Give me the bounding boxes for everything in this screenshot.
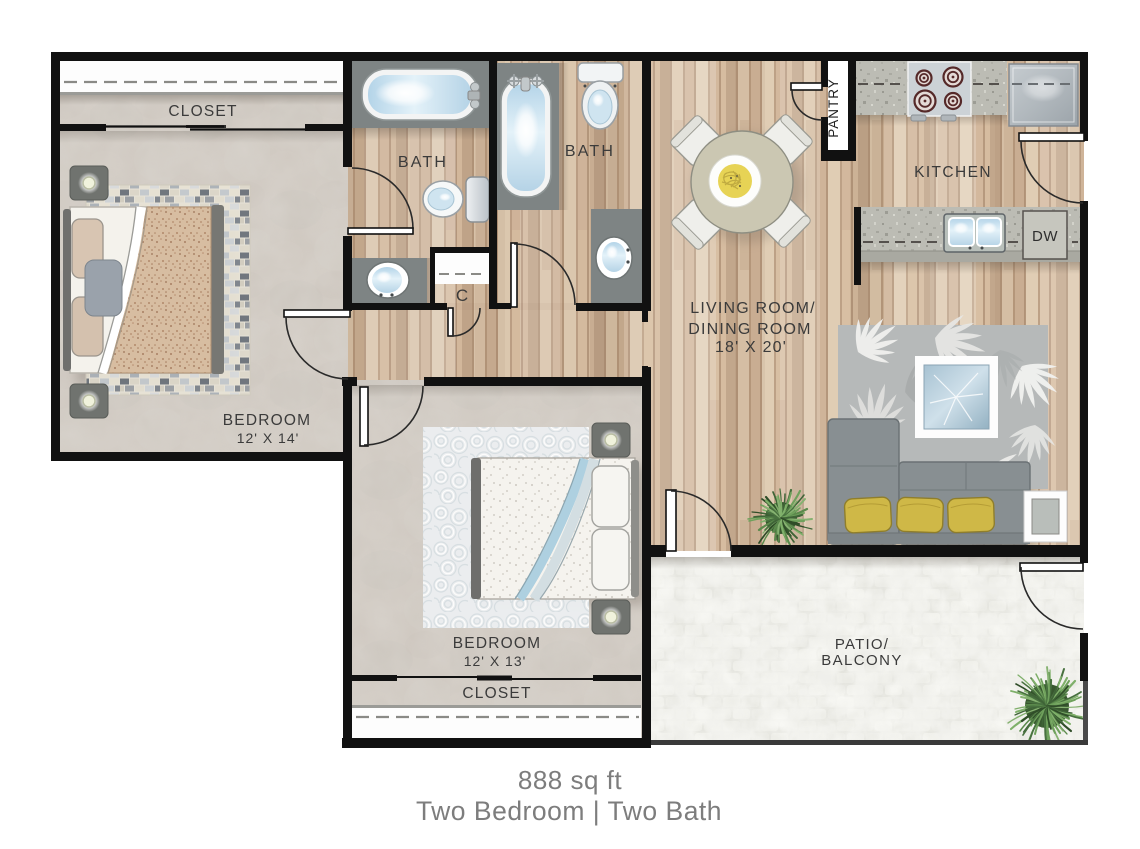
svg-text:888 sq ft: 888 sq ft — [518, 765, 623, 795]
svg-text:BEDROOM: BEDROOM — [453, 635, 542, 652]
svg-text:BATH: BATH — [565, 143, 615, 160]
svg-text:PANTRY: PANTRY — [826, 78, 841, 138]
svg-text:PATIO/: PATIO/ — [835, 636, 889, 653]
svg-text:BATH: BATH — [398, 154, 448, 171]
svg-text:LIVING ROOM/: LIVING ROOM/ — [690, 300, 816, 317]
svg-text:C: C — [456, 286, 468, 305]
svg-text:12' X 14': 12' X 14' — [237, 430, 300, 446]
svg-text:18' X 20': 18' X 20' — [715, 339, 787, 356]
svg-text:Two Bedroom | Two Bath: Two Bedroom | Two Bath — [416, 796, 722, 826]
svg-text:BEDROOM: BEDROOM — [223, 412, 312, 429]
svg-text:CLOSET: CLOSET — [168, 103, 237, 120]
svg-text:DW: DW — [1032, 228, 1058, 245]
svg-text:12' X 13': 12' X 13' — [464, 653, 527, 669]
svg-text:CLOSET: CLOSET — [462, 685, 531, 702]
svg-text:KITCHEN: KITCHEN — [914, 164, 992, 181]
svg-text:BALCONY: BALCONY — [821, 652, 903, 669]
svg-text:DINING ROOM: DINING ROOM — [688, 321, 811, 338]
